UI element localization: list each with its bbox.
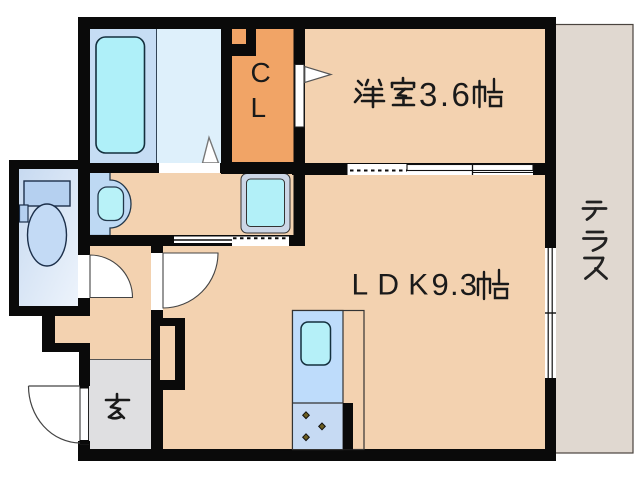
svg-text:L: L — [251, 92, 267, 123]
svg-text:9.3: 9.3 — [432, 267, 479, 302]
svg-text:LDK: LDK — [352, 269, 438, 302]
svg-text:3.6: 3.6 — [419, 76, 472, 113]
svg-text:C: C — [251, 57, 271, 88]
